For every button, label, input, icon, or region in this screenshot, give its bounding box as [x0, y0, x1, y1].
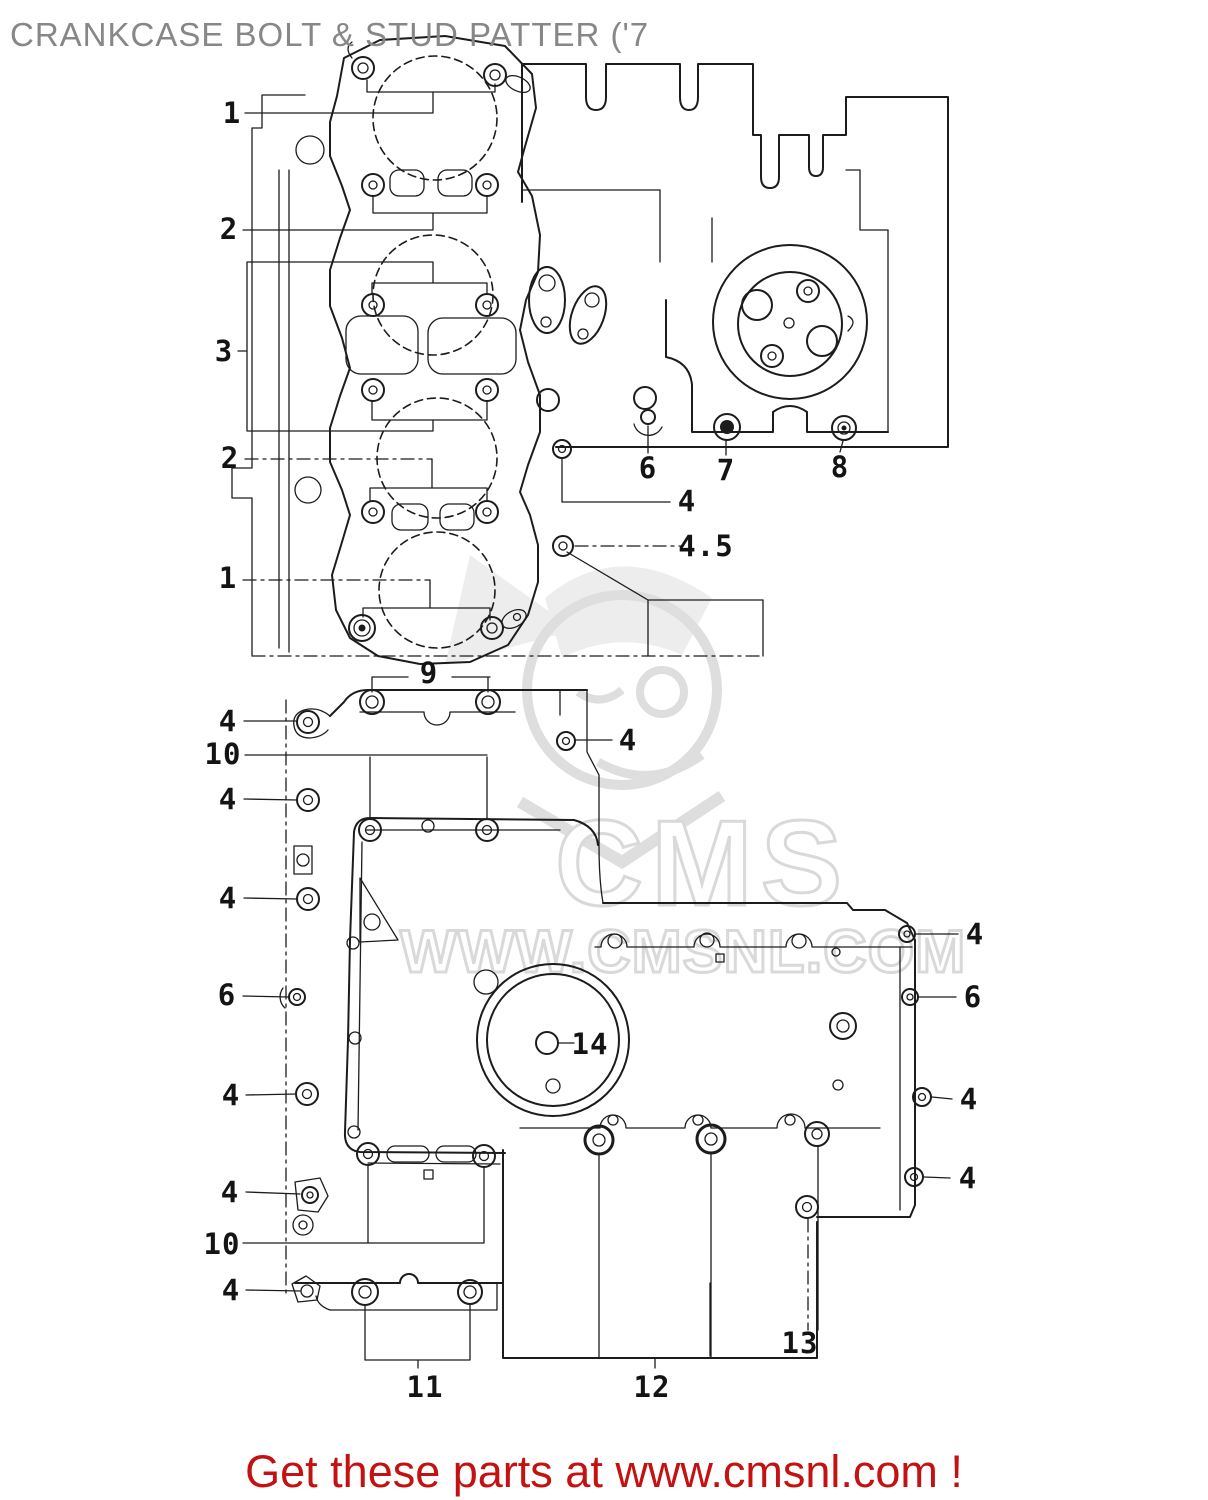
cutout: [390, 170, 424, 196]
callout-label-6-5: 6: [639, 451, 657, 485]
callout-label-13-28: 13: [782, 1326, 819, 1360]
page: CMS WWW.CMSNL.COM: [0, 0, 1208, 1500]
oil-passage-pads: [529, 267, 613, 349]
hole-14: [536, 1032, 558, 1054]
callout-label-14-25: 14: [572, 1027, 609, 1061]
callout-label-10-18: 10: [204, 1227, 241, 1261]
upper-right-plate-outline: [522, 64, 948, 447]
cylinder-bore-1: [373, 56, 497, 180]
callout-label-4-16: 4: [222, 1078, 240, 1112]
stud-4-5: [553, 536, 573, 556]
callout-label-7-6: 7: [717, 453, 735, 487]
hole: [296, 136, 324, 164]
stud-bolt: [484, 64, 533, 96]
callout-label-12-27: 12: [634, 1370, 671, 1404]
bolt-8: [832, 416, 856, 440]
cylinder-bore-2: [373, 235, 493, 355]
callout-label-6-22: 6: [964, 980, 982, 1014]
callout-label-10-12: 10: [205, 737, 242, 771]
upper-left-edge: [232, 95, 305, 655]
callout-label-1-0: 1: [223, 96, 241, 130]
sump-box-outline: [503, 1150, 817, 1358]
hole: [634, 387, 656, 409]
left-bolts: [280, 709, 330, 1302]
callout-label-4-23: 4: [960, 1082, 978, 1116]
callout-label-8-7: 8: [831, 450, 849, 484]
callout-label-4.5-9: 4.5: [678, 529, 733, 563]
callout-label-4-17: 4: [221, 1175, 239, 1209]
callout-label-4-19: 4: [222, 1273, 240, 1307]
callout-label-1-4: 1: [219, 561, 237, 595]
callout-label-2-1: 2: [220, 212, 238, 246]
footer-link-text[interactable]: Get these parts at www.cmsnl.com !: [0, 1446, 1208, 1498]
watermark-wink-icon: [578, 690, 622, 700]
bolt-7: [714, 414, 740, 440]
callout-label-11-26: 11: [407, 1370, 444, 1404]
pan-gasket-details: [347, 819, 498, 1179]
bolt-13: [796, 1196, 818, 1218]
callout-label-4-8: 4: [678, 484, 696, 518]
diagram-canvas: CMS WWW.CMSNL.COM: [0, 0, 1208, 1500]
cylinder-gasket-outline: [330, 36, 540, 664]
callout-label-2-3: 2: [221, 441, 239, 475]
callout-label-4-14: 4: [219, 881, 237, 915]
stud-bolt: [349, 615, 375, 641]
watermark-text-url: WWW.CMSNL.COM: [400, 918, 966, 985]
callout-label-4-21: 4: [966, 917, 984, 951]
plate-step: [846, 170, 888, 230]
lower-crankcase-diagram: [280, 690, 931, 1358]
stud-4: [553, 440, 571, 458]
hole: [295, 477, 321, 503]
page-title: CRANKCASE BOLT & STUD PATTER ('7: [10, 16, 649, 54]
callout-label-3-2: 3: [215, 334, 233, 368]
callout-label-4-20: 4: [619, 723, 637, 757]
cylinder-bore-3: [377, 398, 497, 518]
bolt-4-top-right: [557, 732, 575, 750]
upper-leader-lines: [238, 80, 843, 620]
upper-crankcase-diagram: [232, 36, 948, 664]
cutout: [346, 316, 418, 374]
bolt-9: [360, 690, 500, 714]
pan-bottom-rail: [295, 1274, 503, 1283]
callout-label-9-10: 9: [420, 656, 438, 690]
callout-label-4-13: 4: [219, 782, 237, 816]
sump-rail-details: [585, 1115, 829, 1154]
callout-label-4-24: 4: [959, 1161, 977, 1195]
stud-holes: [362, 174, 498, 523]
cutout: [438, 170, 472, 196]
watermark-eye-icon: [640, 670, 684, 714]
callout-label-6-15: 6: [218, 978, 236, 1012]
bearing-retainer: [713, 245, 867, 399]
callout-label-4-11: 4: [219, 704, 237, 738]
pan-gasket-inner: [358, 830, 560, 1164]
cutout: [428, 318, 516, 374]
